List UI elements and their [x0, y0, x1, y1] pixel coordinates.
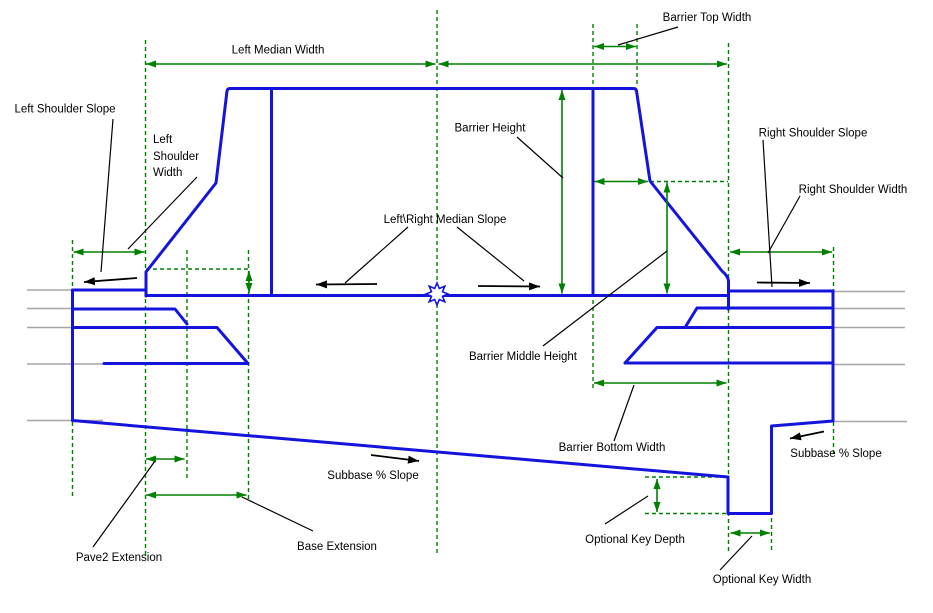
extension-line-verticals [73, 10, 834, 556]
leader-lines [93, 27, 800, 570]
label-subbase-slope-center: Subbase % Slope [327, 470, 418, 482]
label-barrier-middle-height: Barrier Middle Height [469, 351, 578, 363]
leader-barrier-height [517, 137, 563, 178]
label-right-shoulder-slope: Right Shoulder Slope [759, 128, 868, 140]
leader-barrier-top-width [618, 27, 678, 45]
leader-right-shoulder-width [768, 196, 800, 253]
label-barrier-top-width: Barrier Top Width [663, 12, 752, 24]
leader-median-slope-right [457, 227, 524, 281]
leader-barrier-bottom-width [614, 385, 634, 441]
labels: Left Shoulder Slope Left Shoulder Width … [14, 12, 907, 586]
leader-left-shoulder-width [128, 177, 197, 249]
cross-section-diagram: Left Shoulder Slope Left Shoulder Width … [0, 0, 933, 613]
leader-optional-key-width [720, 536, 752, 570]
leader-left-shoulder-slope [101, 119, 113, 272]
label-left-shoulder-width-1: Left [153, 134, 173, 146]
label-subbase-slope-right: Subbase % Slope [790, 448, 881, 460]
label-left-shoulder-slope: Left Shoulder Slope [14, 104, 115, 116]
label-barrier-bottom-width: Barrier Bottom Width [559, 442, 666, 454]
diagram-stage: Left Shoulder Slope Left Shoulder Width … [0, 0, 933, 613]
leader-optional-key-depth [605, 496, 648, 524]
label-optional-key-width: Optional Key Width [713, 574, 811, 586]
label-left-shoulder-width-3: Width [153, 167, 182, 179]
left-pave2-layer [73, 309, 187, 324]
left-median-slope-arrow [316, 284, 377, 285]
extension-lines [73, 10, 834, 556]
slope-direction-arrows [84, 278, 824, 461]
label-pave2-extension: Pave2 Extension [76, 552, 162, 564]
label-base-extension: Base Extension [297, 541, 377, 553]
label-left-shoulder-width-2: Shoulder [153, 151, 199, 163]
right-median-slope-arrow [478, 286, 540, 287]
left-shoulder-slope-arrow [84, 278, 137, 282]
right-shoulder-slope-arrow [757, 283, 810, 284]
label-left-median-width: Left Median Width [232, 45, 325, 57]
left-base-layer [73, 328, 249, 364]
label-right-shoulder-width: Right Shoulder Width [799, 184, 908, 196]
ground-line-right [833, 292, 907, 422]
leader-median-slope-left [345, 227, 408, 283]
label-barrier-height: Barrier Height [455, 123, 527, 135]
label-optional-key-depth: Optional Key Depth [585, 534, 685, 546]
label-median-slope: Left\Right Median Slope [384, 214, 507, 226]
leader-base-extension [242, 497, 313, 531]
optional-key-outline [728, 421, 833, 514]
subbase-slope-center-arrow [371, 455, 419, 461]
leader-right-shoulder-slope [763, 140, 772, 287]
centerline-marker [426, 283, 448, 305]
right-pave2-layer [685, 308, 833, 328]
subbase-slope-right-arrow [790, 432, 824, 439]
